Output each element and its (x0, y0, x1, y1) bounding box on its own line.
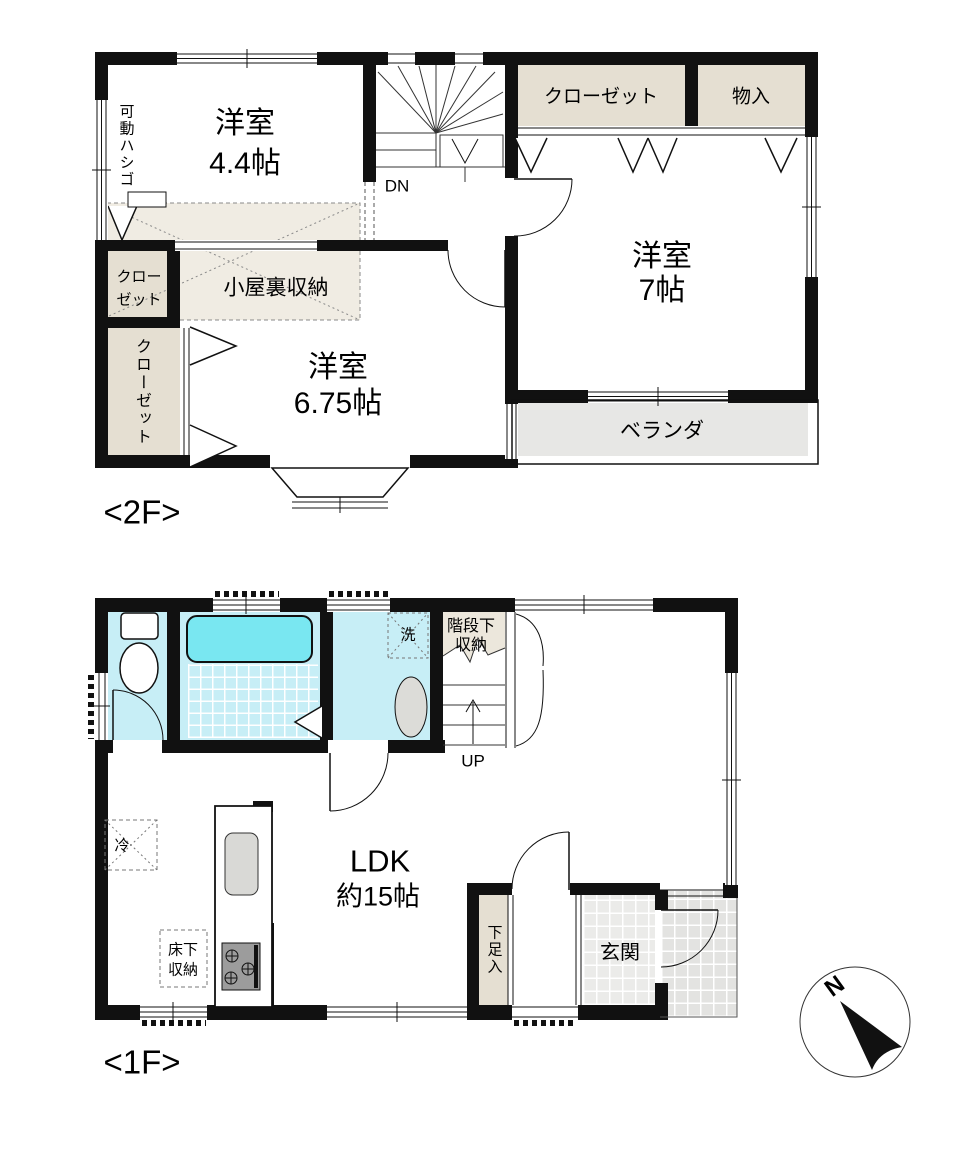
monoire-label: 物入 (732, 88, 770, 107)
window-1f-bottom-hall (512, 1005, 578, 1020)
ldk-name: LDK (350, 846, 410, 877)
stairs-1f (443, 685, 505, 745)
toilet-fixture (120, 613, 158, 693)
window-1f-top-bath-2 (327, 598, 390, 612)
room-675-size: 6.75帖 (294, 389, 382, 419)
floor-2f-label: <2F> (103, 496, 180, 529)
window-2f-stair-2 (455, 52, 483, 65)
attic-storage-label: 小屋裏収納 (224, 278, 329, 299)
shoe-box-front (508, 895, 513, 1005)
closet-folding-door-icons (515, 138, 797, 172)
porch-outline (660, 898, 737, 1017)
stairs-2f (376, 65, 505, 182)
floor-storage-label-2: 収納 (168, 963, 198, 978)
door-1f-toilet (113, 690, 163, 753)
floorplan-svg: N (0, 0, 977, 1151)
entrance-label: 玄関 (600, 943, 640, 963)
bathtub (187, 616, 312, 662)
bay-window-2f (270, 455, 410, 513)
window-2f-top-left (177, 49, 317, 68)
floor-2f-plan (92, 49, 821, 513)
kitchen-counter (215, 806, 272, 1007)
bath-door-icon (295, 706, 322, 738)
closet-tall-label: クローゼット (133, 338, 149, 446)
movable-ladder-hatch (128, 192, 166, 207)
washbasin (395, 677, 427, 737)
room-7-size: 7帖 (639, 276, 686, 306)
window-1f-right-ldk (722, 673, 741, 885)
window-1f-bottom-ldk (327, 1002, 467, 1022)
window-2f-left (92, 100, 111, 240)
under-stair-label-1: 階段下 (447, 619, 495, 635)
windows-2f (92, 49, 821, 459)
window-2f-stair-1 (388, 52, 415, 65)
room-44-size: 4.4帖 (209, 149, 281, 179)
ldk-size: 約15帖 (336, 884, 420, 911)
door-1f-hall-double (506, 612, 543, 748)
compass: N (800, 967, 910, 1077)
shutter-teeth (91, 594, 577, 1023)
floor-1f-label: <1F> (103, 1046, 180, 1079)
door-1f-washroom (328, 740, 388, 811)
floor-storage-label-1: 床下 (168, 943, 198, 958)
window-1f-toilet-jalousie (92, 673, 110, 740)
closet-tall-front (184, 328, 189, 455)
door-2f-room7 (505, 178, 572, 236)
walls-2f (95, 52, 818, 468)
door-2f-room675 (448, 240, 505, 307)
window-1f-porch-top (660, 890, 723, 896)
stairs-dn-label: DN (385, 178, 410, 195)
fridge-space (105, 820, 157, 870)
floorplan-canvas: N 洋室 4.4帖 可動ハシゴ DN クローゼット 物入 洋室 7帖 クロー ゼ… (0, 0, 977, 1151)
veranda-label: ベランダ (620, 421, 704, 442)
window-2f-right (802, 137, 821, 277)
entrance-step-edge (576, 895, 581, 1005)
closet-top-label: クローゼット (544, 88, 658, 107)
closet-front-rail-2f (518, 126, 805, 137)
door-1f-front (661, 910, 718, 967)
laundry-label: 洗 (400, 628, 415, 643)
room-44-name: 洋室 (215, 109, 275, 139)
window-2f-veranda-sliding (588, 387, 728, 406)
window-1f-bottom-kitchen (140, 1002, 207, 1022)
shoe-box-label: 下足入 (487, 925, 502, 976)
room-7-name: 洋室 (632, 242, 692, 272)
closet-small-label-1: クロー (116, 270, 161, 285)
door-1f-entrance-hall (512, 832, 570, 895)
floor-1f-plan (91, 594, 741, 1023)
window-1f-top-bath-1 (213, 595, 280, 614)
attic-front-rail (175, 240, 317, 251)
movable-ladder-label: 可動ハシゴ (119, 104, 134, 189)
window-1f-top-ldk (515, 595, 653, 614)
stairs-up-label: UP (461, 753, 485, 770)
closet-small-label-2: ゼット (116, 293, 161, 308)
stairs-left-opening (365, 182, 374, 240)
room-675-name: 洋室 (308, 353, 368, 383)
under-stair-label-2: 収納 (455, 638, 487, 654)
fridge-label: 冷 (114, 839, 129, 854)
